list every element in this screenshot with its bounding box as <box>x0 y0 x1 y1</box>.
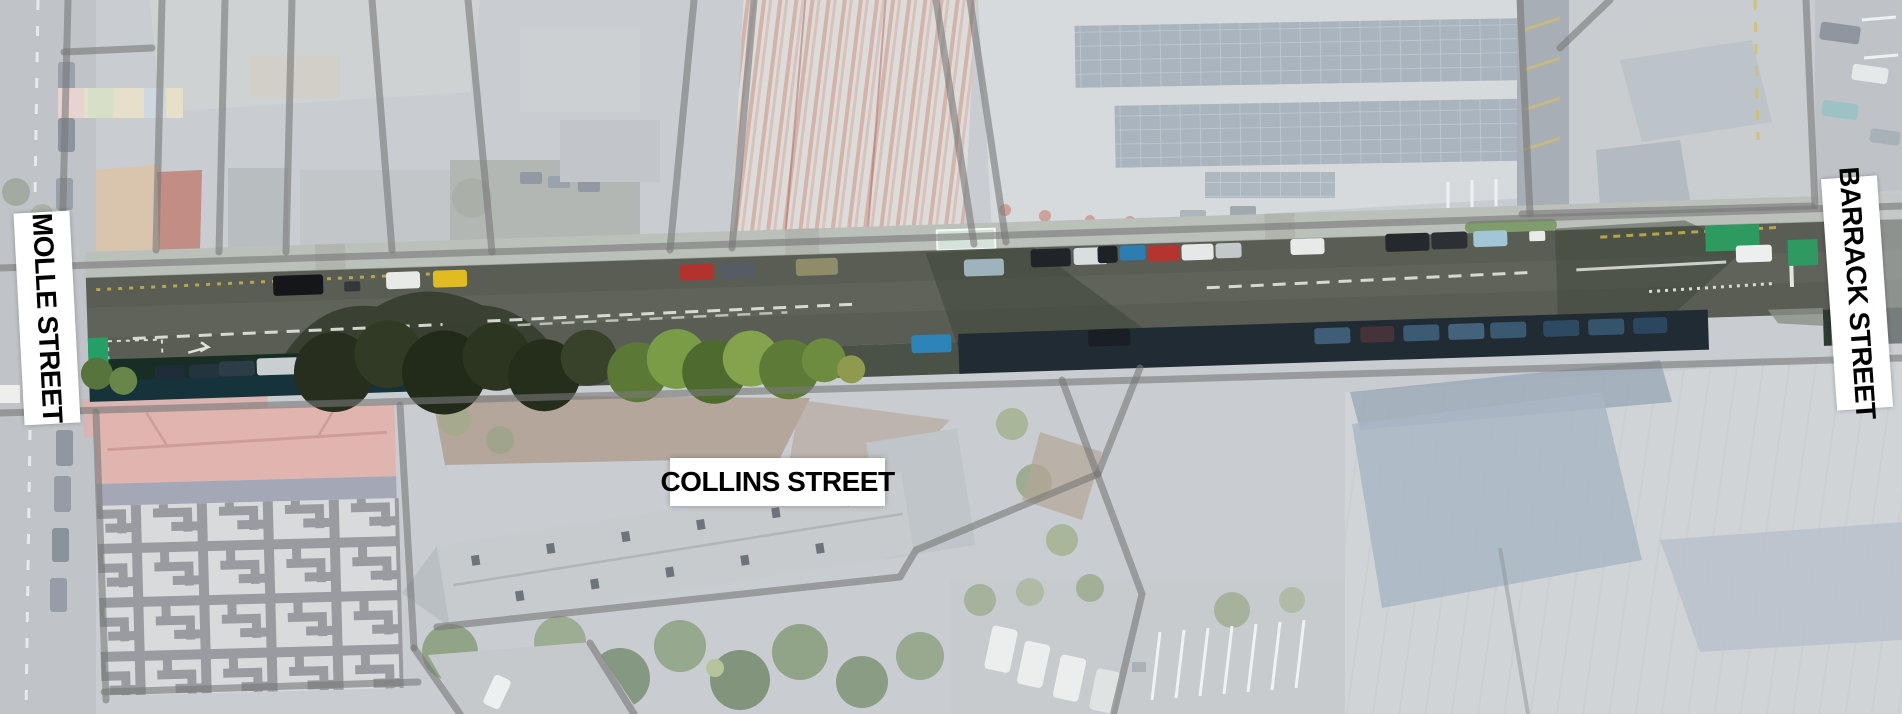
right-warehouses <box>1345 356 1902 714</box>
molle-street-label: MOLLE STREET <box>13 211 80 426</box>
collins-street-label: COLLINS STREET <box>670 458 885 506</box>
map-canvas: MOLLE STREET COLLINS STREET BARRACK STRE… <box>0 0 1902 714</box>
parking-lot <box>950 578 1345 714</box>
aerial-basemap <box>0 0 1902 714</box>
markets-block <box>94 404 403 696</box>
